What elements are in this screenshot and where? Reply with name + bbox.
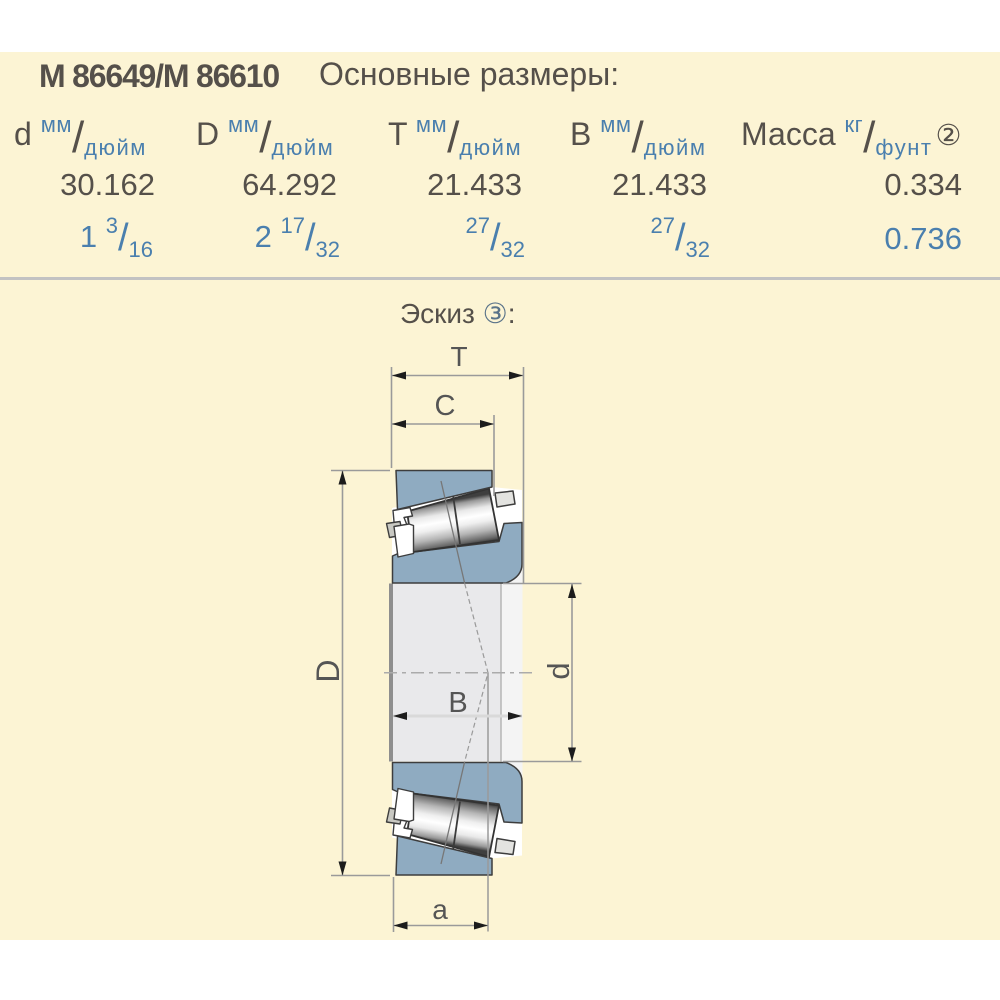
svg-text:d: d <box>541 662 576 679</box>
svg-text:a: a <box>432 894 448 925</box>
svg-text:T: T <box>450 341 467 372</box>
svg-text:D: D <box>310 659 346 682</box>
svg-text:B: B <box>448 687 467 719</box>
svg-text:C: C <box>435 390 456 422</box>
